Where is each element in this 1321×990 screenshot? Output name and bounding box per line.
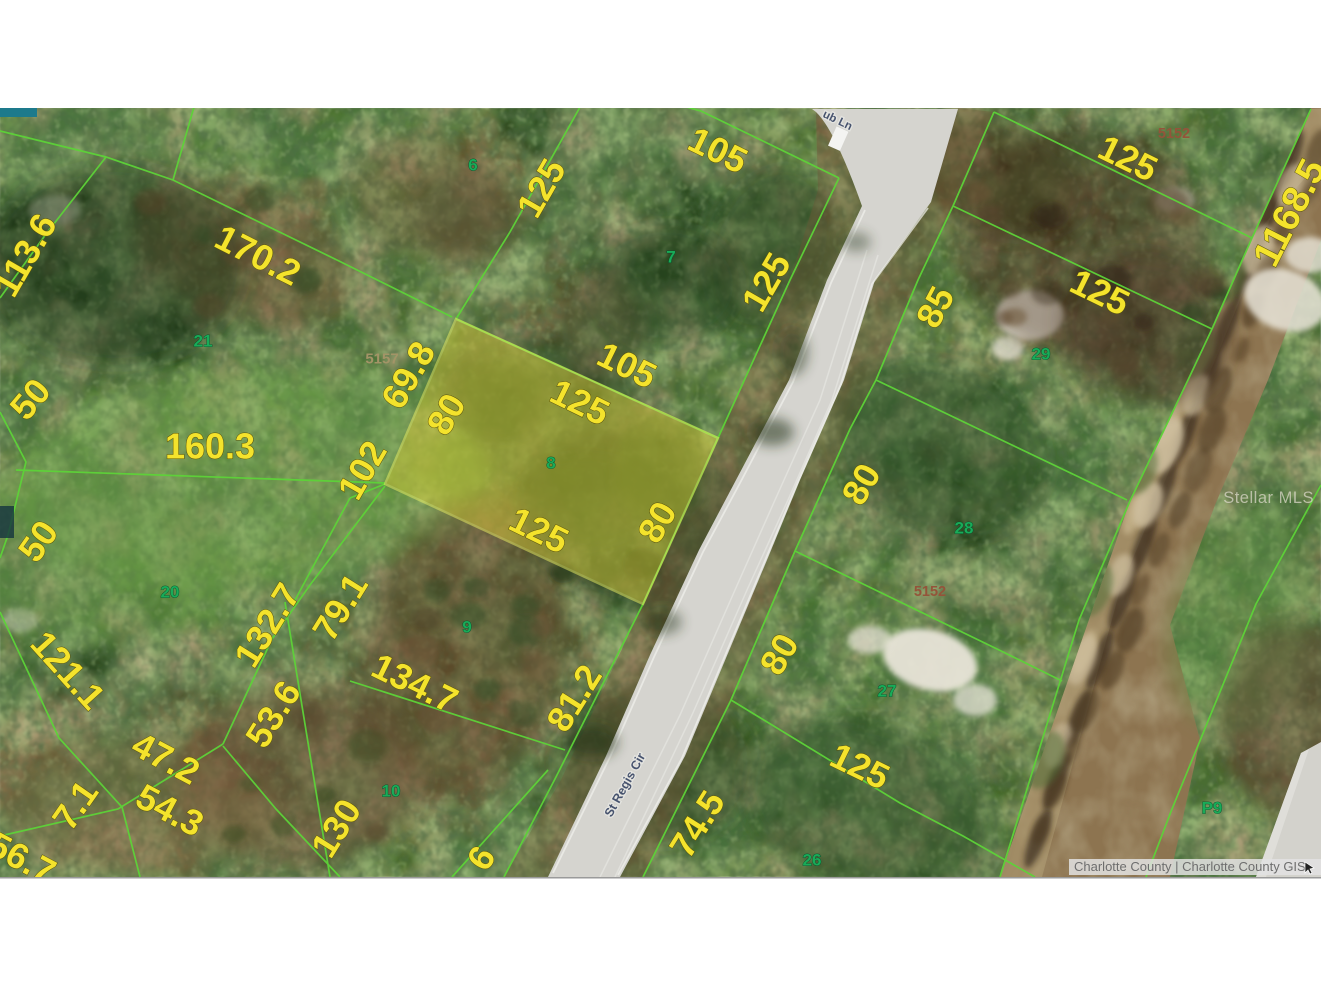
svg-text:P9: P9: [1202, 799, 1223, 818]
svg-text:26: 26: [803, 851, 822, 870]
svg-text:10: 10: [382, 782, 401, 801]
svg-text:Stellar MLS: Stellar MLS: [1223, 489, 1314, 507]
svg-text:21: 21: [194, 332, 213, 351]
svg-text:7: 7: [666, 248, 675, 267]
svg-text:Charlotte County | Charlotte C: Charlotte County | Charlotte County GIS: [1074, 859, 1306, 874]
svg-text:160.3: 160.3: [165, 426, 255, 467]
svg-text:29: 29: [1032, 345, 1051, 364]
svg-text:8: 8: [546, 454, 555, 473]
svg-text:6: 6: [468, 156, 477, 175]
svg-text:28: 28: [955, 519, 974, 538]
svg-text:5152: 5152: [1158, 126, 1190, 142]
svg-text:20: 20: [161, 583, 180, 602]
svg-text:5152: 5152: [914, 584, 946, 600]
svg-text:5157: 5157: [365, 351, 398, 368]
svg-text:9: 9: [462, 618, 471, 637]
svg-text:27: 27: [878, 682, 897, 701]
